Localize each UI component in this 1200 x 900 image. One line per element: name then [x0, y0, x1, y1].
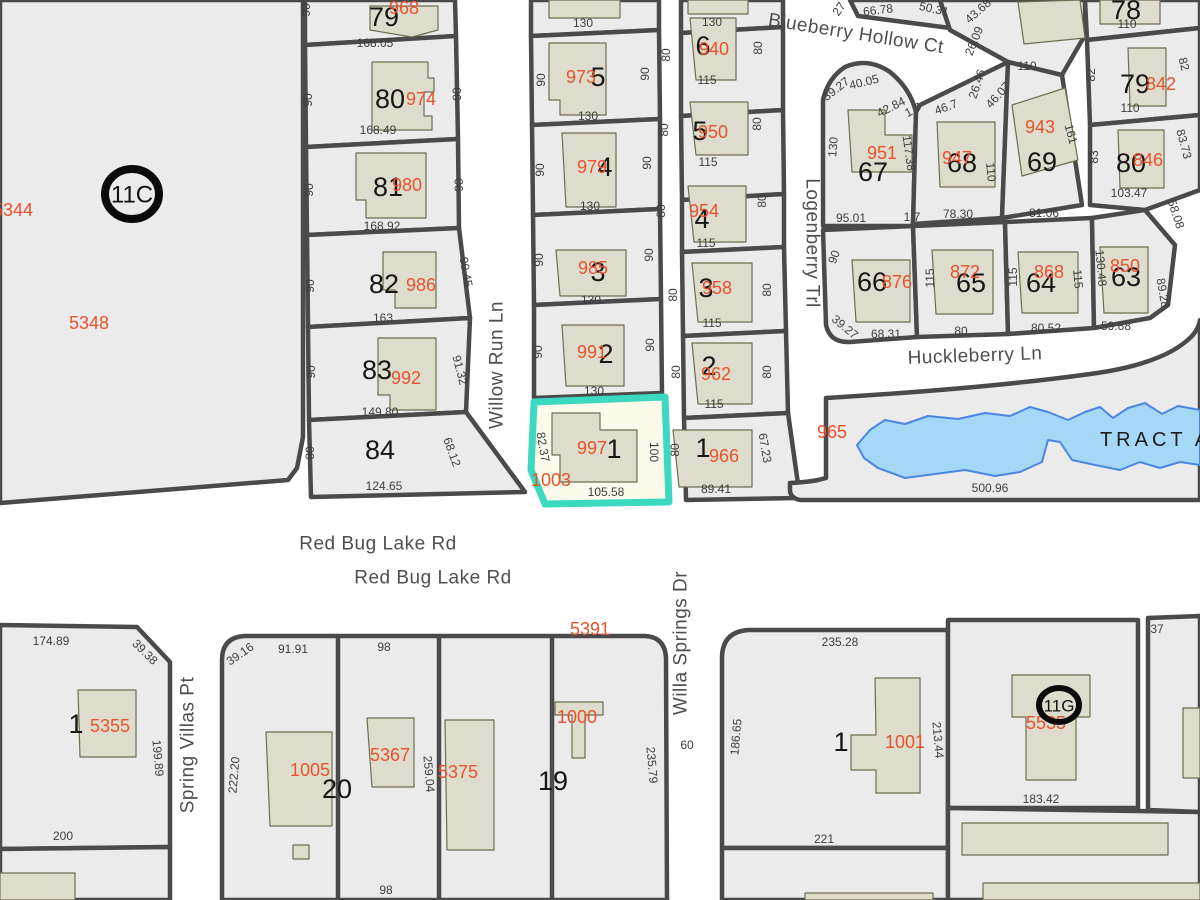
- building: [962, 823, 1168, 855]
- plat-circle-label: 11G: [1044, 697, 1075, 716]
- lot-number-label: 83: [362, 355, 392, 385]
- lot-number-label: 1: [606, 434, 621, 464]
- parcel-id-label: 947: [942, 148, 972, 168]
- dimension-label: 78.30: [943, 207, 973, 221]
- dimension-label: 130: [581, 293, 601, 307]
- dimension-label: 90: [534, 73, 548, 87]
- dimension-label: 115: [923, 268, 937, 287]
- parcel-id-label: 950: [698, 122, 728, 142]
- parcel-id-label: 966: [709, 446, 739, 466]
- parcel-id-label: 846: [1133, 150, 1163, 170]
- parcel-id-label: 842: [1146, 74, 1176, 94]
- parcel-id-label: 5348: [69, 313, 109, 333]
- parcel-id-label: 973: [566, 67, 596, 87]
- building: [688, 0, 748, 14]
- dimension-label: 221: [814, 832, 834, 846]
- dimension-label: 83: [1087, 150, 1101, 164]
- dimension-label: 80: [755, 194, 769, 208]
- dimension-label: 163: [373, 311, 393, 325]
- dimension-label: 80: [303, 446, 317, 460]
- building: [983, 883, 1200, 900]
- parcel-map-canvas[interactable]: Willow Run LnBlueberry Hollow CtLogenber…: [0, 0, 1200, 900]
- tract-labels: TRACT A: [1100, 429, 1200, 451]
- dimension-label: 500.96: [972, 481, 1009, 495]
- dimension-label: 168.49: [360, 123, 397, 137]
- dimension-label: 168.92: [364, 219, 401, 233]
- dimension-label: 80: [760, 365, 774, 379]
- street-name-label: Willow Run Ln: [487, 301, 508, 429]
- dimension-label: 100: [647, 442, 661, 462]
- street-name-label: Huckleberry Ln: [907, 343, 1042, 369]
- parcel-id-label: 5344: [0, 200, 33, 220]
- dimension-label: 168.05: [357, 36, 394, 50]
- dimension-label: 80: [669, 365, 683, 379]
- parcel-id-label: 1001: [885, 732, 925, 752]
- dimension-label: 90: [533, 163, 547, 177]
- building: [1183, 708, 1200, 778]
- lot-number-label: 69: [1027, 147, 1057, 177]
- dimension-label: 115: [702, 316, 721, 330]
- dimension-label: 105.58: [588, 485, 625, 499]
- dimension-label: 115: [698, 155, 717, 169]
- dimension-label: 115: [1006, 267, 1020, 286]
- dimension-label: 80: [668, 443, 682, 457]
- dimension-label: 37: [1150, 622, 1164, 636]
- parcel-id-label: 968: [389, 0, 419, 18]
- parcel-id-label: 5355: [90, 716, 130, 736]
- dimension-label: 90: [531, 345, 545, 359]
- dimension-label: 90: [638, 67, 652, 81]
- dimension-label: 59.88: [1101, 319, 1131, 333]
- dimension-label: 80.52: [1031, 321, 1061, 335]
- parcel-id-label: 5375: [438, 762, 478, 782]
- dimension-label: 110: [983, 162, 999, 183]
- parcel-id-label: 850: [1110, 256, 1140, 276]
- dimension-label: 130: [584, 384, 604, 398]
- dimension-label: 124.65: [366, 479, 403, 493]
- lot-number-label: 80: [375, 84, 405, 114]
- dimension-label: 115: [696, 236, 715, 250]
- dimension-label: 60: [680, 738, 694, 752]
- parcel-id-label: 5367: [370, 745, 410, 765]
- parcel-id-label: 965: [817, 422, 847, 442]
- parcel-id-label: 5391: [570, 619, 610, 639]
- dimension-label: 91.91: [278, 642, 308, 656]
- dimension-label: 58.08: [1165, 198, 1188, 231]
- street-name-label: Red Bug Lake Rd: [299, 534, 457, 555]
- building: [1018, 0, 1085, 44]
- dimension-label: 80: [954, 324, 968, 338]
- street-name-label: Spring Villas Pt: [178, 677, 199, 814]
- dimension-label: 81.06: [1029, 206, 1059, 220]
- parcel-id-label: 979: [577, 157, 607, 177]
- parcel-id-label: 974: [406, 89, 436, 109]
- parcel-id-label: 954: [689, 201, 719, 221]
- building: [0, 873, 75, 900]
- dimension-label: 200: [53, 829, 73, 843]
- dimension-label: 68.31: [871, 327, 901, 341]
- dimension-label: 115: [1070, 269, 1086, 290]
- parcel-id-label: 985: [578, 258, 608, 278]
- street-name-label: Red Bug Lake Rd: [354, 568, 512, 589]
- dimension-label: 130: [825, 136, 841, 157]
- parcel-id-label: 991: [577, 342, 607, 362]
- dimension-label: 130: [702, 15, 722, 29]
- parcel-id-label: 1000: [557, 707, 597, 727]
- dimension-label: 235.28: [822, 635, 859, 649]
- dimension-label: 90: [643, 338, 657, 352]
- dimension-label: 103.47: [1111, 186, 1148, 200]
- parcel-id-label: 872: [950, 262, 980, 282]
- street-name-label: Logenberry Trl: [802, 178, 823, 308]
- street-name-label: Willa Springs Dr: [671, 571, 692, 715]
- lot-number-label: 84: [365, 435, 395, 465]
- gis-parcel-map-viewport[interactable]: Willow Run LnBlueberry Hollow CtLogenber…: [0, 0, 1200, 900]
- parcel-id-label: 958: [702, 278, 732, 298]
- dimension-label: 115: [697, 73, 716, 87]
- dimension-label: 80: [760, 283, 774, 297]
- tract-label: TRACT A: [1100, 429, 1200, 451]
- dimension-label: 110: [1120, 101, 1139, 115]
- dimension-label: 82: [1084, 68, 1098, 82]
- parcel-id-label: 876: [882, 272, 912, 292]
- dimension-label: 90: [452, 178, 466, 192]
- dimension-label: 80: [751, 41, 765, 55]
- dimension-label: 183.42: [1023, 792, 1060, 806]
- dimension-label: 90: [642, 248, 656, 262]
- dimension-label: 1.7: [904, 210, 921, 224]
- dimension-label: 98: [379, 883, 393, 897]
- dimension-label: 90: [640, 156, 654, 170]
- parcel-id-label: 992: [391, 368, 421, 388]
- dimension-label: 27: [829, 0, 848, 18]
- dimension-label: 130: [580, 199, 600, 213]
- building: [293, 845, 309, 859]
- dimension-label: 80: [750, 117, 764, 131]
- parcel-id-label: 1005: [290, 760, 330, 780]
- dimension-label: 130: [573, 16, 593, 30]
- parcel-id-label: 940: [699, 39, 729, 59]
- dimension-label: 80: [657, 123, 671, 137]
- lot-number-label: 78: [1111, 0, 1141, 25]
- dimension-label: 90: [299, 3, 313, 17]
- dimension-label: 95.01: [836, 211, 866, 225]
- lot-number-label: 1: [68, 709, 83, 739]
- dimension-label: 98: [377, 640, 391, 654]
- parcel-id-label: 962: [701, 364, 731, 384]
- dimension-label: 110: [1017, 59, 1036, 73]
- lot-number-label: 82: [369, 269, 399, 299]
- parcel-id-label: 1003: [531, 470, 571, 490]
- dimension-label: 80: [666, 288, 680, 302]
- dimension-label: 90: [450, 87, 464, 101]
- parcel-id-label: 980: [392, 175, 422, 195]
- dimension-label: 90: [302, 183, 316, 197]
- parcel-id-label: 951: [867, 143, 897, 163]
- lot-number-label: 1: [833, 727, 848, 757]
- building: [445, 720, 494, 850]
- parcel-id-label: 986: [406, 275, 436, 295]
- dimension-label: 89.41: [701, 482, 731, 496]
- dimension-label: 90: [532, 253, 546, 267]
- parcel-large-west[interactable]: [0, 0, 303, 503]
- building: [805, 893, 933, 900]
- parcel-below-1001[interactable]: [722, 848, 948, 900]
- dimension-label: 90: [303, 279, 317, 293]
- lot-number-label: 19: [538, 766, 568, 796]
- dimension-label: 80: [654, 204, 668, 218]
- dimension-label: 80: [659, 48, 673, 62]
- plat-circle-label: 11C: [111, 182, 153, 209]
- dimension-label: 90: [304, 365, 318, 379]
- parcel-id-label: 997: [577, 438, 607, 458]
- dimension-label: 130: [578, 109, 598, 123]
- dimension-label: 115: [704, 397, 723, 411]
- dimension-label: 149.80: [362, 405, 399, 419]
- dimension-label: 90: [301, 93, 315, 107]
- dimension-label: 174.89: [33, 634, 70, 648]
- parcel-id-label: 943: [1025, 117, 1055, 137]
- parcel-id-label: 868: [1034, 262, 1064, 282]
